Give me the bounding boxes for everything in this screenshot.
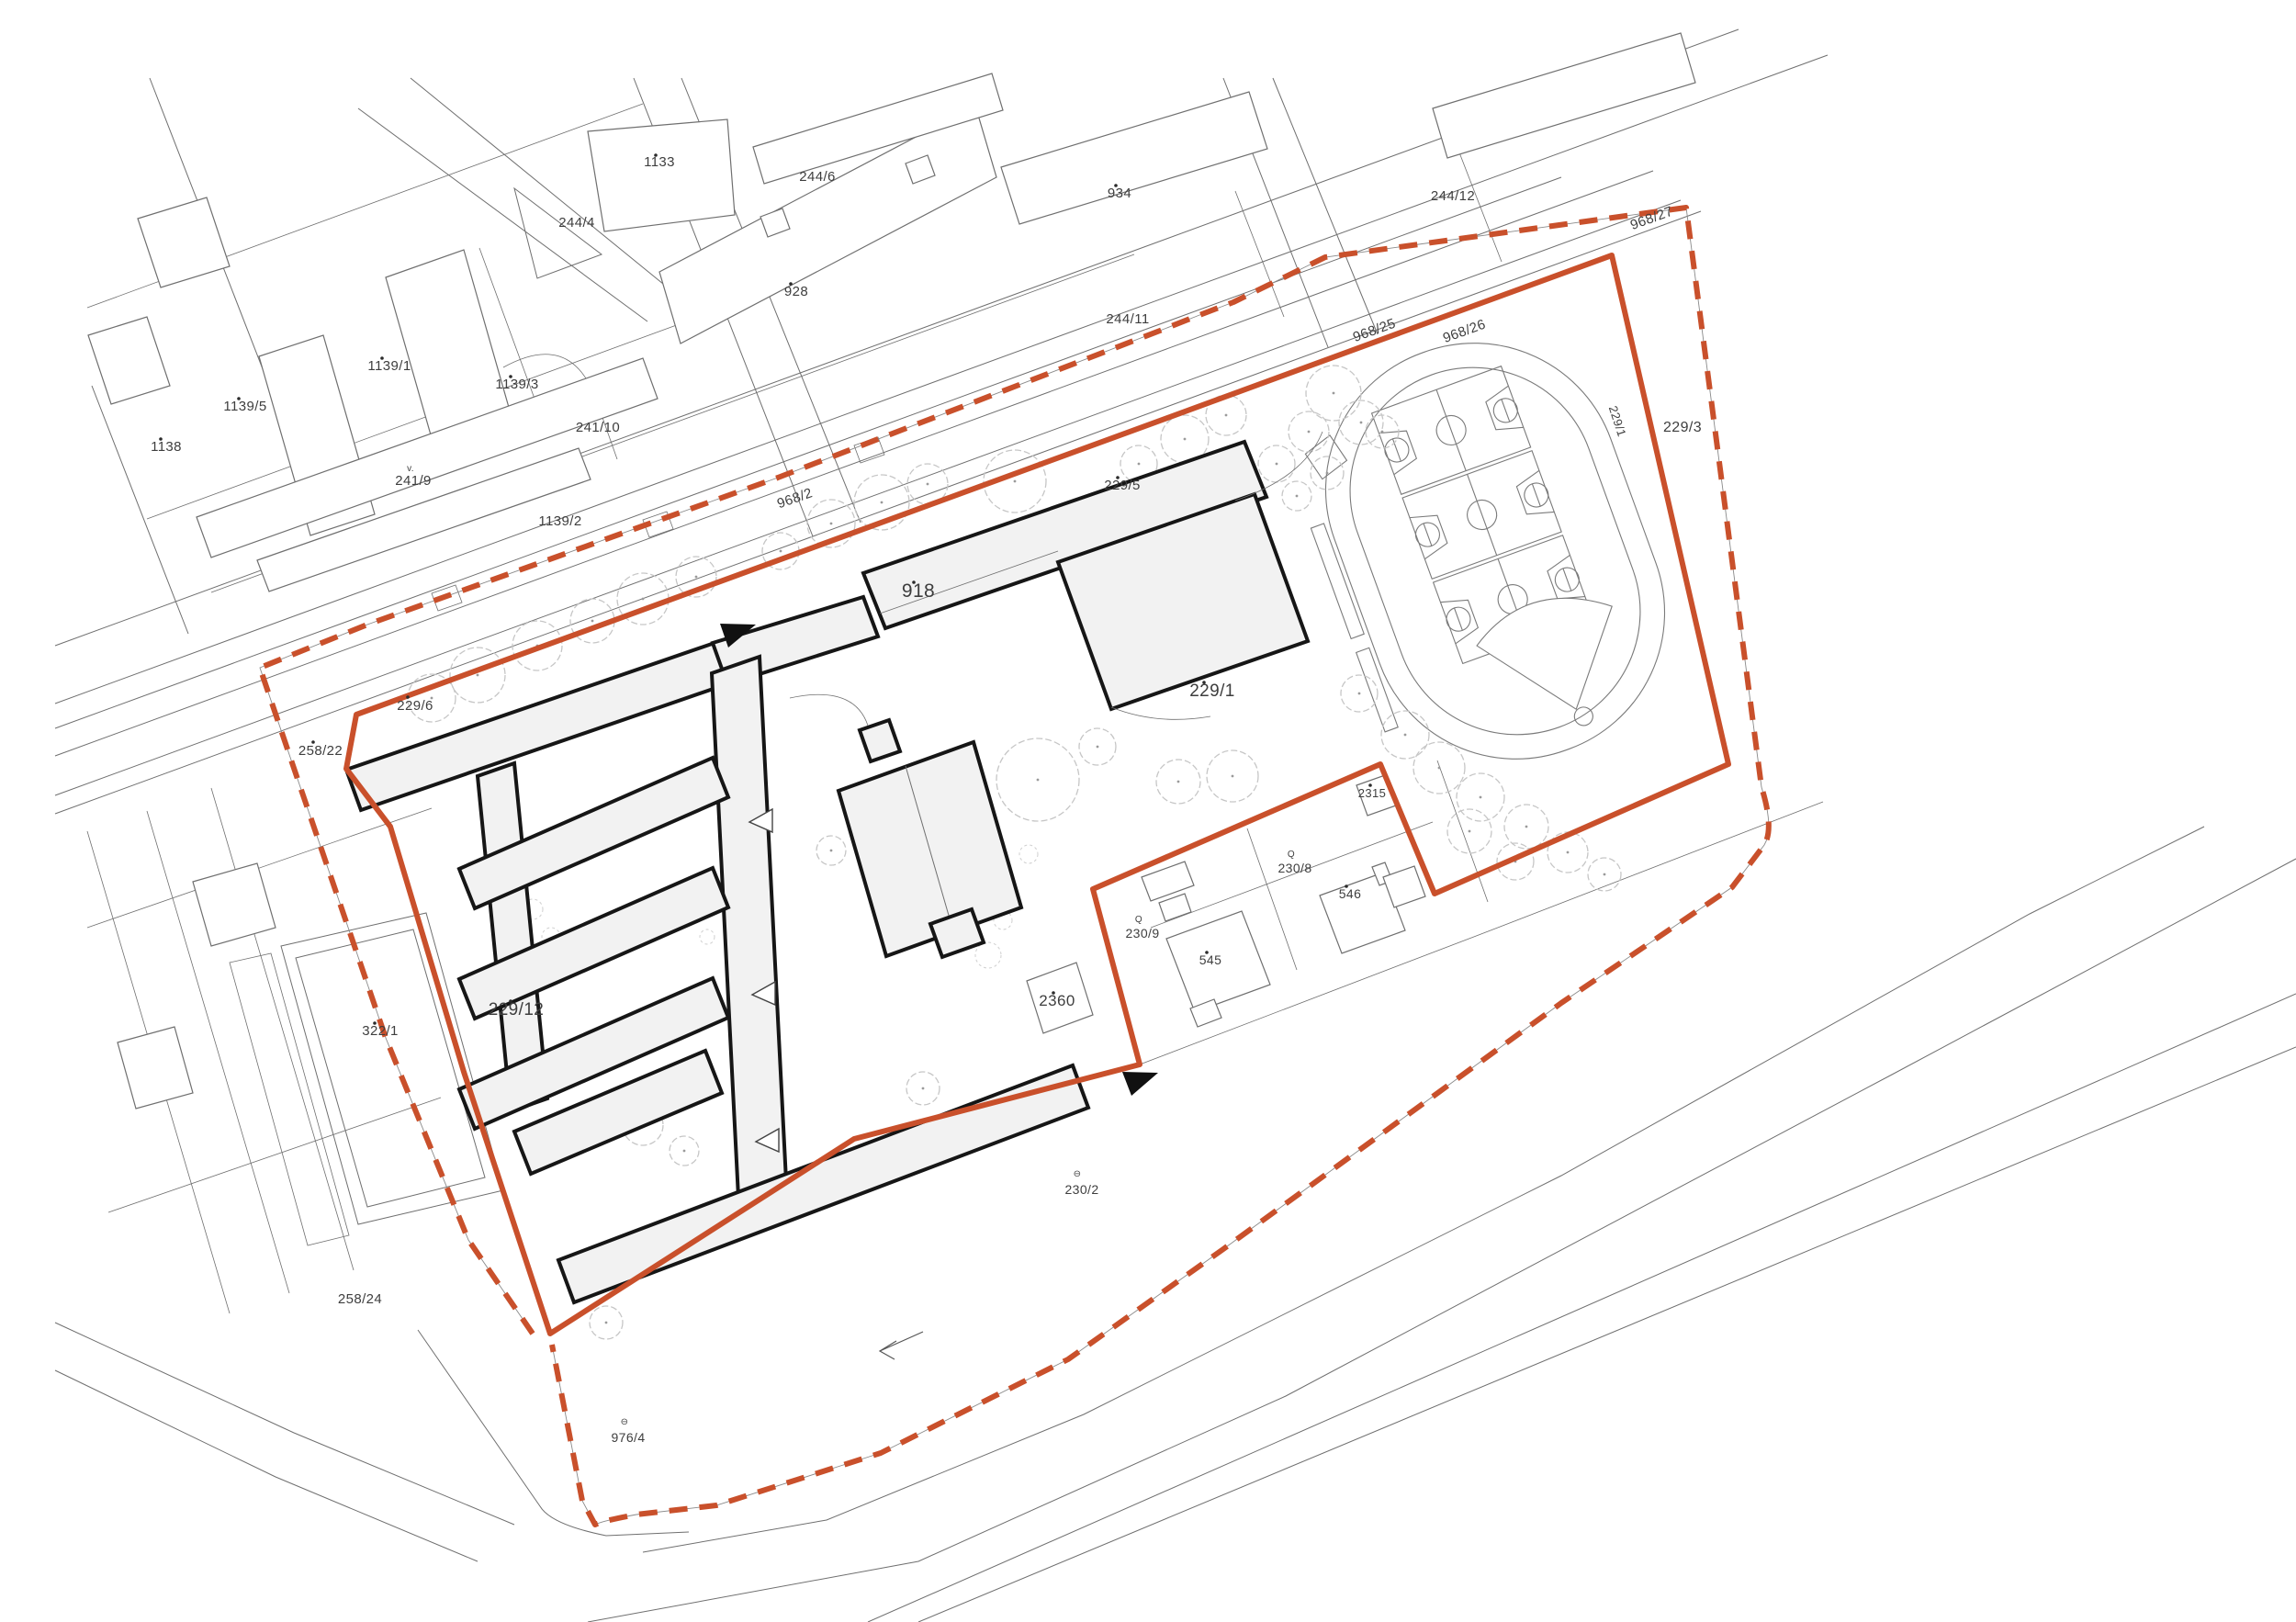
throwing-sector bbox=[1469, 578, 1640, 734]
parcel-label: 229/1 bbox=[1189, 681, 1235, 701]
parcel-label: 934 bbox=[1108, 186, 1131, 201]
shrub-icon bbox=[975, 942, 1001, 968]
neighbor-parcels-southwest bbox=[87, 788, 503, 1313]
parcel-label: 230/2 bbox=[1064, 1182, 1098, 1197]
parcel-label: 258/22 bbox=[298, 743, 343, 759]
parcel-label: 976/4 bbox=[611, 1430, 645, 1445]
street-arrow bbox=[880, 1332, 923, 1359]
parcel-label: 244/4 bbox=[558, 215, 595, 231]
building-spine bbox=[712, 657, 786, 1198]
parcel-label: 928 bbox=[784, 284, 808, 299]
parcel-label: 968/26 bbox=[1441, 317, 1488, 346]
parcel-label: 229/12 bbox=[489, 1000, 545, 1019]
land-use-symbol: Q bbox=[1288, 850, 1295, 860]
land-use-symbol: Q bbox=[1135, 915, 1142, 925]
parcel-label: 968/2 bbox=[775, 485, 815, 512]
parcel-label: 244/11 bbox=[1106, 311, 1149, 327]
gym-north-stub bbox=[860, 720, 900, 761]
land-use-symbol: ⊖ bbox=[621, 1417, 629, 1427]
parcel-label: 229/5 bbox=[1104, 478, 1141, 493]
site-plan-page: 1133244/6244/4928934244/12968/27244/1196… bbox=[0, 0, 2296, 1622]
parcel-label: 1139/3 bbox=[495, 377, 538, 392]
east-parcels-houses bbox=[1140, 760, 1823, 1064]
land-use-symbol: v. bbox=[407, 464, 414, 474]
parcel-label: 1133 bbox=[644, 154, 675, 170]
parcel-label: 244/12 bbox=[1431, 188, 1475, 204]
parcel-label: 230/8 bbox=[1277, 861, 1311, 875]
parcel-label: 545 bbox=[1199, 952, 1222, 967]
parcel-label: 229/3 bbox=[1663, 420, 1702, 435]
parcel-label: 241/9 bbox=[395, 473, 432, 489]
parcel-label: 229/6 bbox=[397, 698, 433, 714]
shrub-icon bbox=[700, 929, 715, 944]
parcel-label: 258/24 bbox=[338, 1291, 382, 1307]
parcel-label: 2315 bbox=[1358, 786, 1387, 800]
parcel-label: 244/6 bbox=[799, 169, 836, 185]
parcel-label: 2360 bbox=[1039, 992, 1075, 1009]
parcel-label: 322/1 bbox=[362, 1023, 399, 1039]
land-use-symbol: ⊖ bbox=[1074, 1169, 1082, 1179]
parcel-label: 1139/5 bbox=[223, 399, 266, 414]
parcel-label: 1139/1 bbox=[367, 358, 411, 374]
site-plan-drawing: 1133244/6244/4928934244/12968/27244/1196… bbox=[0, 0, 2296, 1622]
shrub-icon bbox=[1019, 845, 1038, 863]
parcel-label: 1139/2 bbox=[538, 513, 581, 529]
parcel-label: 1138 bbox=[151, 439, 182, 455]
parcel-label: 229/1 bbox=[1606, 404, 1629, 438]
court-2 bbox=[1401, 450, 1562, 579]
parcel-label: 546 bbox=[1339, 886, 1362, 901]
parcel-label: 230/9 bbox=[1125, 926, 1159, 941]
court-1 bbox=[1371, 366, 1532, 494]
parcel-label: 241/10 bbox=[576, 420, 620, 435]
parcel-label: 918 bbox=[902, 580, 935, 602]
entrance-arrow-icon bbox=[1122, 1072, 1158, 1096]
stand-strip-1 bbox=[1311, 524, 1364, 638]
